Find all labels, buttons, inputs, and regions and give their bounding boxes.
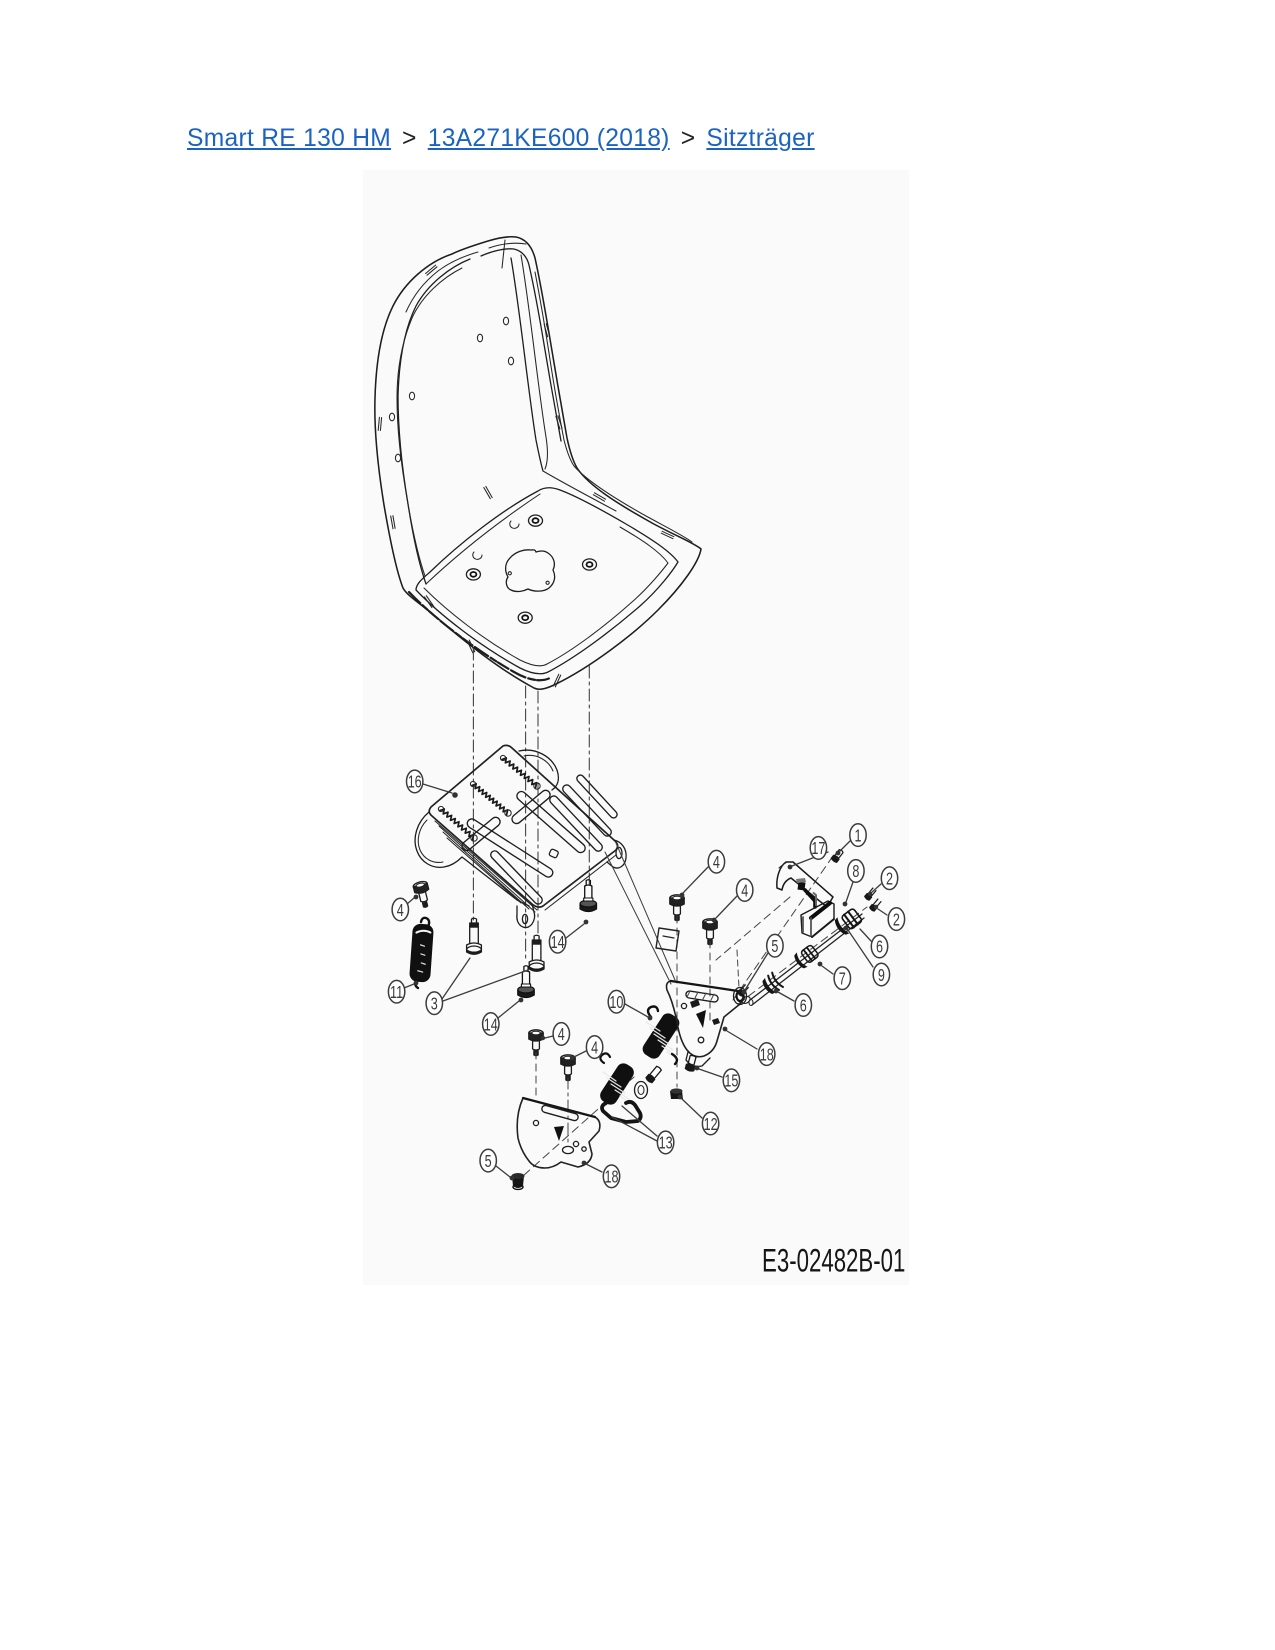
svg-text:5: 5 (485, 1152, 492, 1172)
svg-text:4: 4 (713, 853, 720, 873)
svg-text:4: 4 (741, 881, 748, 901)
svg-text:2: 2 (893, 910, 900, 930)
svg-text:7: 7 (839, 969, 846, 989)
svg-text:8: 8 (852, 862, 859, 882)
svg-text:10: 10 (609, 993, 623, 1013)
svg-text:6: 6 (876, 938, 883, 958)
svg-text:14: 14 (484, 1015, 498, 1035)
svg-text:4: 4 (558, 1025, 565, 1045)
svg-text:11: 11 (390, 983, 403, 1003)
svg-text:18: 18 (760, 1045, 774, 1065)
svg-text:3: 3 (431, 994, 438, 1014)
svg-text:1: 1 (854, 826, 861, 846)
svg-text:17: 17 (811, 839, 825, 859)
svg-text:12: 12 (704, 1115, 718, 1135)
svg-text:4: 4 (397, 901, 404, 921)
svg-text:13: 13 (659, 1134, 673, 1154)
svg-text:18: 18 (604, 1168, 618, 1188)
svg-text:6: 6 (800, 996, 807, 1016)
svg-text:2: 2 (886, 869, 893, 889)
svg-text:5: 5 (771, 937, 778, 957)
svg-text:4: 4 (591, 1038, 598, 1058)
svg-text:E3-02482B-01: E3-02482B-01 (762, 1242, 905, 1278)
svg-text:15: 15 (724, 1072, 738, 1092)
svg-text:16: 16 (408, 773, 422, 793)
svg-text:14: 14 (551, 933, 565, 953)
svg-text:9: 9 (878, 966, 885, 986)
